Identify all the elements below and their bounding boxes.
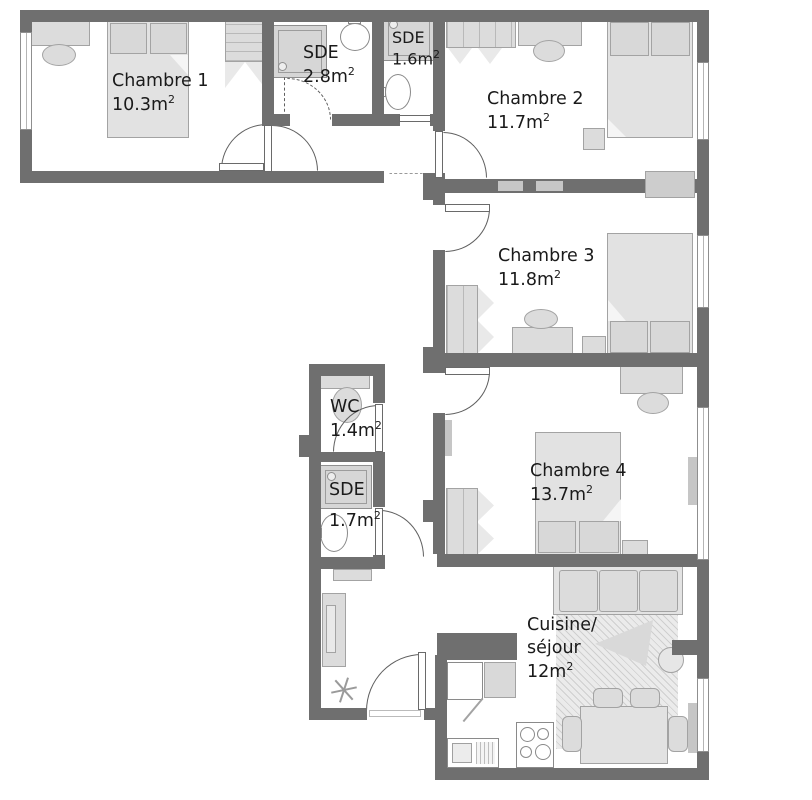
room-name: WC — [330, 397, 360, 417]
room-label-chambre-3: Chambre 3 11.8m2 — [498, 245, 594, 292]
dining-chair — [562, 716, 582, 752]
mirror-unit — [326, 605, 336, 653]
wall — [372, 114, 400, 126]
wall — [697, 752, 709, 780]
fridge-door — [463, 698, 484, 722]
room-area: 12m — [527, 662, 566, 682]
door-swing-arc — [272, 125, 318, 171]
wardrobe-door — [478, 287, 494, 319]
wardrobe-door — [448, 48, 472, 64]
door-leaf — [418, 652, 426, 710]
room-label-chambre-2: Chambre 2 11.7m2 — [487, 88, 583, 135]
room-label-cuisine-sejour: Cuisine/ séjour 12m2 — [527, 614, 597, 684]
pillow — [650, 321, 690, 353]
door-swing-arc — [366, 654, 422, 711]
stove-burner — [537, 728, 549, 740]
window — [697, 407, 709, 560]
wardrobe-door — [225, 62, 245, 88]
room-name: Chambre 4 — [530, 461, 626, 481]
wall — [697, 308, 709, 407]
wall — [697, 10, 709, 62]
stove-burner — [520, 746, 532, 758]
room-name-2: séjour — [527, 638, 581, 658]
pillow — [579, 521, 619, 553]
wall — [309, 708, 367, 720]
wall — [309, 557, 380, 569]
door-swing-arc — [379, 510, 424, 557]
wall — [433, 413, 445, 554]
desk-chair — [533, 40, 565, 62]
door-swing-arc — [445, 208, 490, 252]
window — [697, 678, 709, 752]
room-name: SDE — [329, 480, 365, 500]
window — [697, 235, 709, 308]
nightstand — [583, 128, 605, 150]
wall — [423, 500, 445, 522]
room-name: Chambre 3 — [498, 246, 594, 266]
dining-table — [580, 706, 668, 764]
wall — [672, 640, 699, 655]
washbasin — [385, 74, 411, 110]
room-label-chambre-4: Chambre 4 13.7m2 — [530, 460, 626, 507]
wardrobe-door — [478, 490, 494, 521]
sofa-cushion — [639, 570, 678, 612]
wall — [433, 250, 445, 353]
door-leaf — [219, 163, 264, 171]
sofa-cushion — [599, 570, 638, 612]
door-leaf — [445, 204, 490, 212]
wall — [437, 633, 517, 660]
room-name: Cuisine/ — [527, 615, 597, 635]
door-leaf — [435, 131, 443, 178]
wall — [309, 364, 321, 720]
room-area: 1.7m — [329, 511, 374, 531]
floor-plan: Chambre 1 10.3m2 SDE 2.8m2 SDE 1.6m2 Cha… — [0, 0, 812, 800]
room-area: 2.8m — [303, 67, 348, 87]
dining-chair — [630, 688, 660, 708]
wall — [20, 10, 709, 22]
wardrobe — [446, 285, 478, 356]
pillow — [610, 321, 648, 353]
stove-burner — [520, 727, 535, 742]
desk — [620, 363, 683, 394]
wall — [299, 435, 309, 457]
pillow — [651, 22, 690, 56]
entrance-threshold — [369, 710, 421, 717]
wall — [433, 193, 445, 205]
radiator — [688, 703, 697, 753]
desk-chair — [524, 309, 558, 329]
room-name: Chambre 2 — [487, 89, 583, 109]
pillow — [610, 22, 649, 56]
wall — [697, 560, 709, 678]
console-shelf — [333, 569, 372, 581]
door-leaf — [399, 115, 431, 122]
door-leaf — [445, 367, 490, 375]
room-label-sde-1-6: SDE 1.6m2 — [392, 27, 440, 70]
wall — [435, 768, 709, 780]
shower-drain — [278, 62, 287, 71]
sofa-cushion — [559, 570, 598, 612]
room-label-sde-1-7: SDE 1.7m2 — [329, 475, 381, 536]
pillow — [538, 521, 576, 553]
pillow — [110, 23, 147, 54]
room-label-wc: WC 1.4m2 — [330, 396, 382, 443]
room-name: Chambre 1 — [112, 71, 208, 91]
radiator — [645, 171, 695, 198]
desk-chair — [637, 392, 669, 414]
room-label-sde-2-8: SDE 2.8m2 — [303, 42, 355, 89]
room-area: 11.7m — [487, 113, 543, 133]
dining-chair — [668, 716, 688, 752]
wall — [309, 452, 385, 462]
wardrobe-door — [478, 321, 494, 353]
wall — [437, 554, 709, 567]
wardrobe-door — [478, 48, 502, 64]
wall — [435, 655, 447, 780]
room-area: 1.4m — [330, 421, 375, 441]
radiator — [445, 420, 452, 456]
room-name: SDE — [303, 43, 339, 63]
room-area: 13.7m — [530, 485, 586, 505]
wall — [262, 10, 274, 126]
room-label-chambre-1: Chambre 1 10.3m2 — [112, 70, 208, 117]
kitchen-counter — [447, 662, 483, 700]
radiator — [498, 181, 523, 191]
room-area: 1.6m — [392, 49, 433, 68]
wall — [426, 353, 709, 367]
wall — [20, 10, 32, 32]
wall — [697, 140, 709, 235]
door-leaf — [264, 125, 272, 172]
sink-basin — [452, 743, 472, 763]
room-name: SDE — [392, 28, 425, 47]
wall — [309, 364, 385, 376]
door-swing-arc — [445, 371, 490, 415]
wardrobe-door — [478, 523, 494, 554]
door-swing-arc — [443, 132, 487, 178]
stove-burner — [535, 744, 551, 760]
fridge — [484, 662, 516, 698]
desk — [28, 18, 90, 46]
desk — [512, 327, 573, 356]
wardrobe — [446, 488, 478, 556]
room-area: 11.8m — [498, 270, 554, 290]
room-area: 10.3m — [112, 95, 168, 115]
wall — [423, 347, 445, 373]
radiator — [688, 457, 697, 505]
threshold-marks — [389, 173, 423, 178]
radiator — [536, 181, 563, 191]
sink-drainboard — [476, 742, 495, 764]
desk-chair — [42, 44, 76, 66]
window — [20, 32, 32, 130]
window — [697, 62, 709, 140]
wall — [20, 171, 384, 183]
dining-chair — [593, 688, 623, 708]
pillow — [150, 23, 187, 54]
wall — [372, 10, 384, 126]
